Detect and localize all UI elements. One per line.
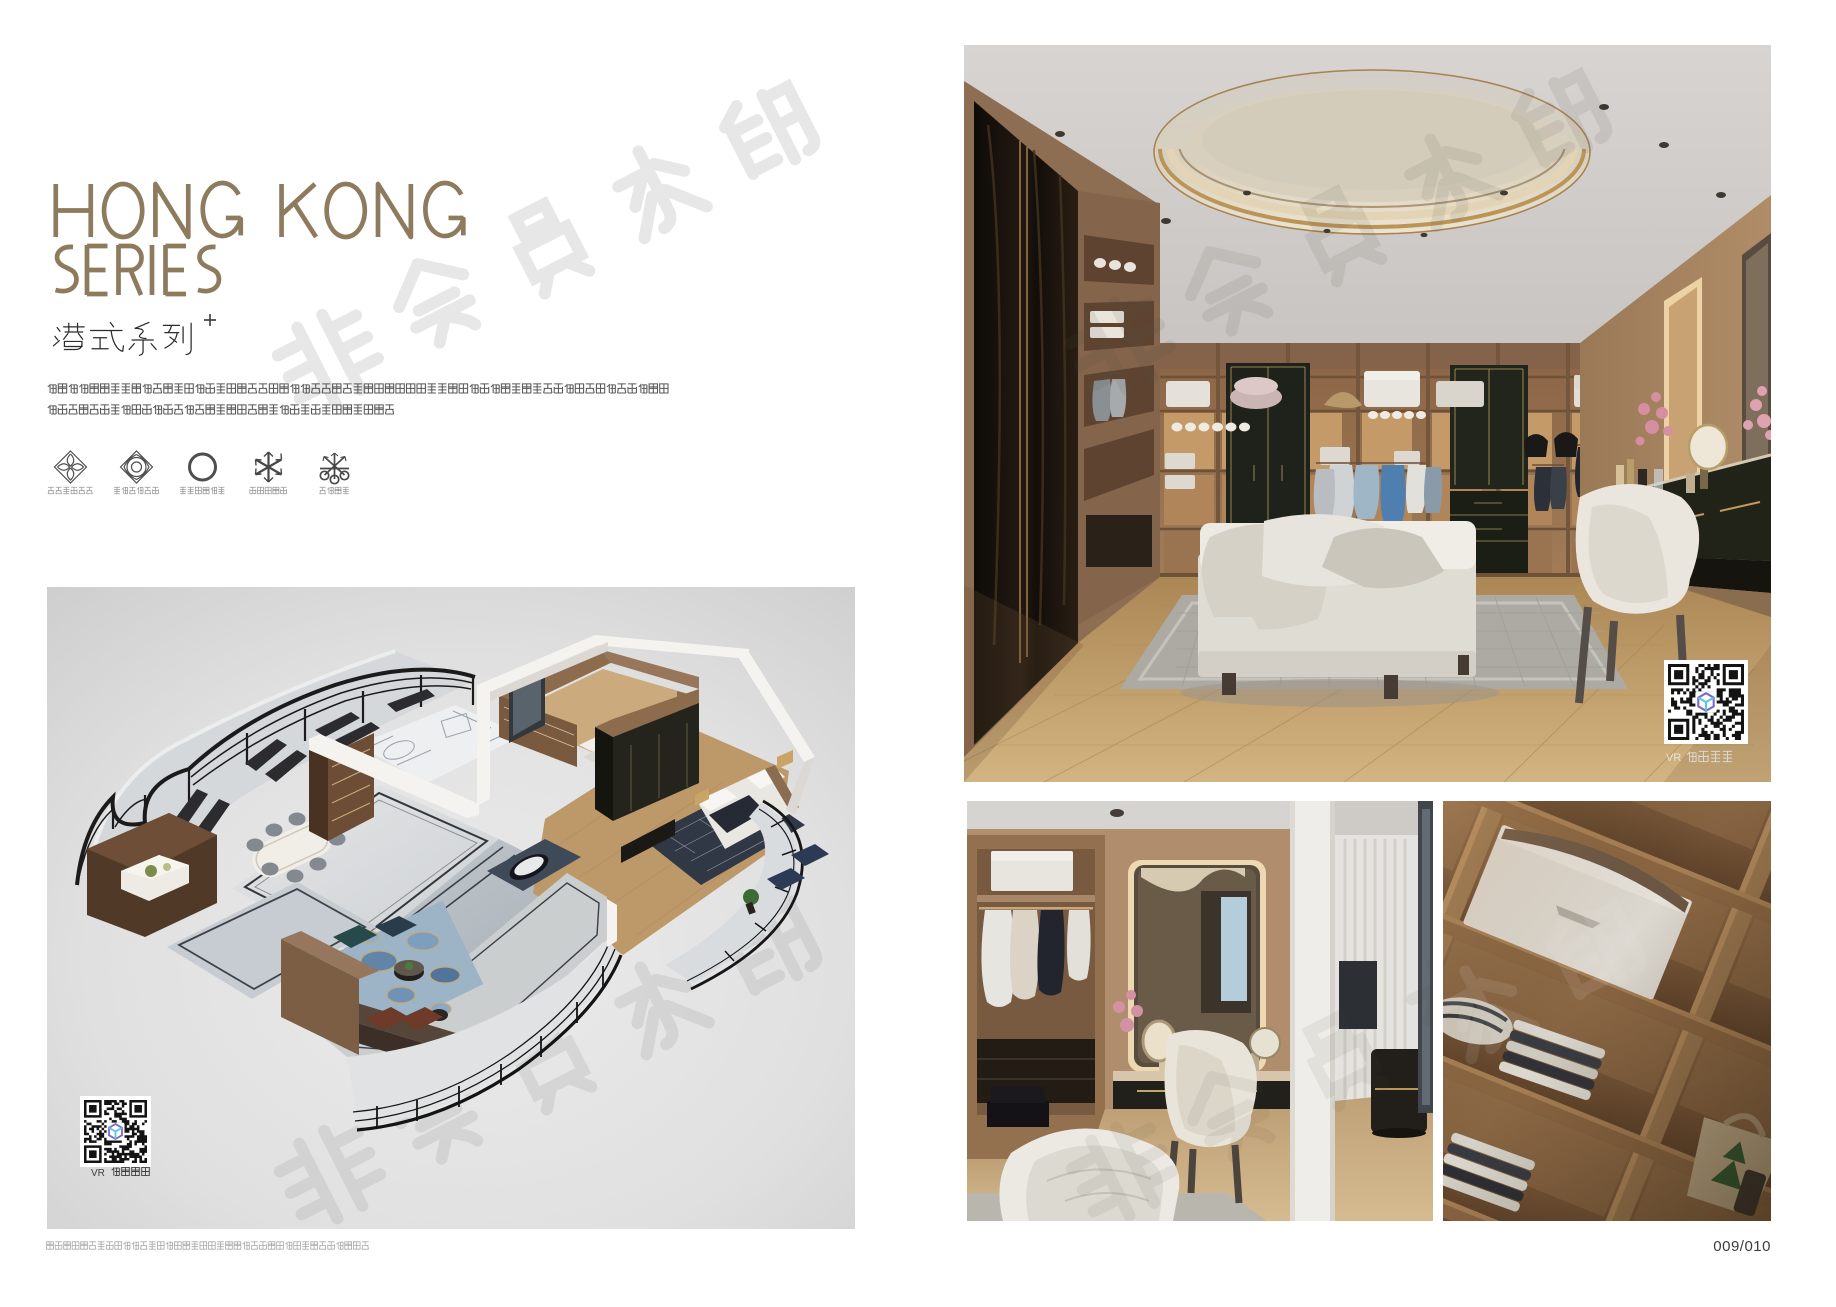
svg-text:VR: VR: [91, 1168, 105, 1179]
svg-text:VR: VR: [1666, 752, 1681, 764]
